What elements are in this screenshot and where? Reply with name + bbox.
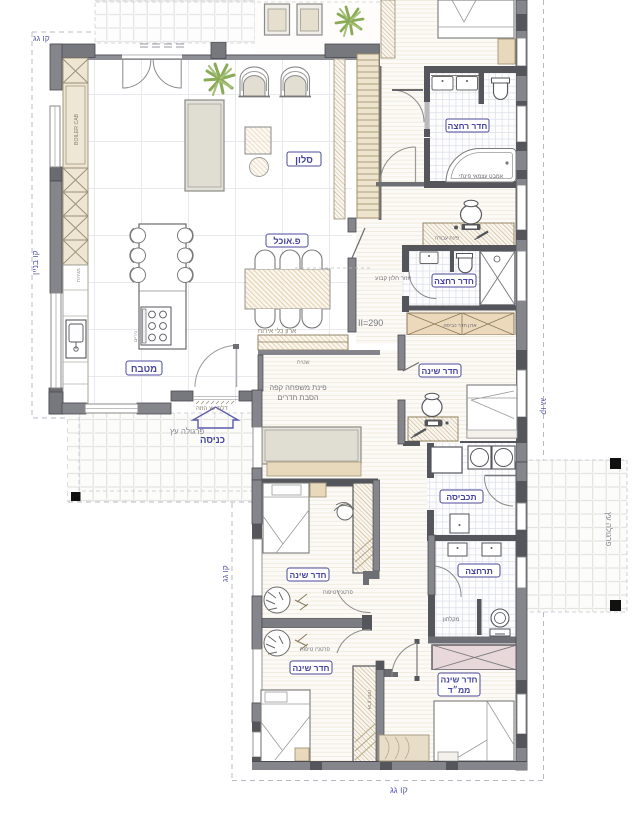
svg-text:כיריים: כיריים: [133, 330, 138, 342]
svg-text:ארון כלי אירוח: ארון כלי אירוח: [258, 327, 296, 335]
svg-text:הסבת חדרים: הסבת חדרים: [277, 393, 319, 402]
svg-text:II=290: II=290: [358, 318, 383, 328]
svg-text:תרחצה: תרחצה: [465, 566, 493, 576]
svg-text:פינת עבודה: פינת עבודה: [435, 236, 459, 242]
svg-text:מקלחון: מקלחון: [443, 616, 459, 623]
svg-text:קו בניין: קו בניין: [30, 250, 40, 275]
svg-text:פרגולה עץ: פרגולה עץ: [604, 512, 613, 546]
svg-text:קו גג: קו גג: [539, 398, 549, 415]
svg-text:חדר שינה: חדר שינה: [422, 366, 459, 376]
svg-text:שטיח: שטיח: [297, 360, 310, 366]
svg-text:קו גג: קו גג: [220, 565, 230, 582]
svg-text:מגירות: מגירות: [77, 268, 82, 282]
svg-text:קו גג: קו גג: [390, 785, 408, 795]
svg-text:תכביסה: תכביסה: [446, 492, 476, 502]
svg-text:BOILER CAB: BOILER CAB: [74, 113, 80, 145]
svg-text:חדר שינה: חדר שינה: [293, 663, 330, 673]
svg-text:קו גג: קו גג: [33, 33, 50, 43]
svg-text:אזור חלון קבוע: אזור חלון קבוע: [375, 274, 411, 282]
svg-text:כניסה: כניסה: [200, 435, 225, 446]
svg-text:דלת עץ הזזה: דלת עץ הזזה: [196, 404, 228, 412]
svg-text:פרטני/ טיפוח: פרטני/ טיפוח: [300, 647, 330, 653]
svg-text:פינת משפחה קפה: פינת משפחה קפה: [269, 383, 327, 392]
svg-text:סלון: סלון: [295, 155, 313, 166]
svg-text:אמבט עצמאי פינתי: אמבט עצמאי פינתי: [459, 174, 504, 180]
svg-text:חדר רחצה: חדר רחצה: [448, 121, 488, 131]
svg-text:חדר שינה: חדר שינה: [441, 675, 478, 685]
svg-text:חדר רחצה: חדר רחצה: [434, 276, 474, 286]
svg-text:ארון הזזה: ארון הזזה: [366, 690, 372, 710]
svg-text:פ.אוכל: פ.אוכל: [273, 236, 300, 246]
svg-text:חדר שינה: חדר שינה: [290, 570, 327, 580]
svg-text:ארון חדר כביסה: ארון חדר כביסה: [443, 323, 477, 329]
svg-text:ממ״ד: ממ״ד: [448, 685, 471, 695]
svg-text:מטבח: מטבח: [131, 364, 157, 375]
